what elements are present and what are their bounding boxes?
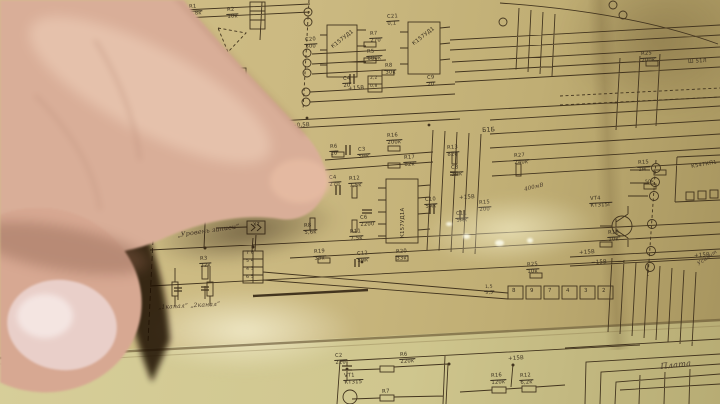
video-frame: R16,8кR210кГром.С20300С210,1R7270R5680кR… [0,0,720,404]
fingernail-highlight [17,294,73,338]
hand-overlay [0,0,720,404]
fingertip [270,159,330,203]
